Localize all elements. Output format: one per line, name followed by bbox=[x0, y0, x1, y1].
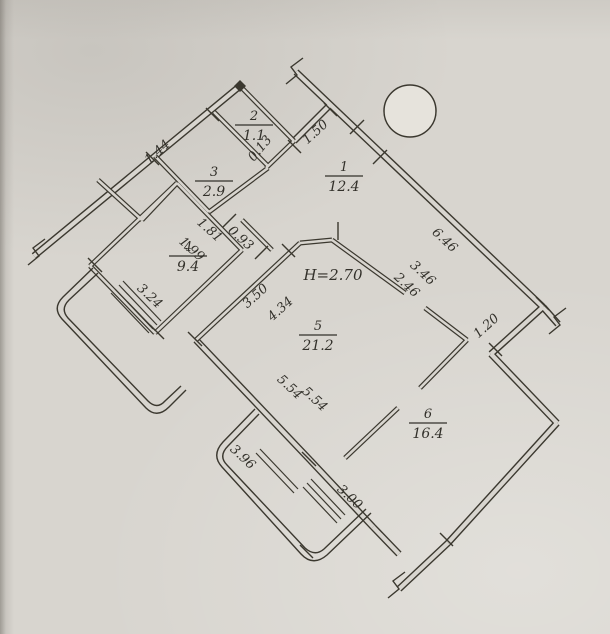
wall-line bbox=[260, 449, 298, 489]
room-number: 1 bbox=[340, 160, 348, 175]
wall-line bbox=[373, 527, 399, 554]
dimension-label-1.20: 1.20 bbox=[471, 311, 503, 342]
scanned-floor-plan-page: 1.440.131.501.811.990.936.463.462.461.20… bbox=[0, 0, 610, 634]
room-area: 9.4 bbox=[177, 259, 199, 275]
room-label-3: 32.9 bbox=[195, 165, 233, 200]
wall-line bbox=[448, 423, 557, 543]
floor-plan-canvas: 1.440.131.501.811.990.936.463.462.461.20… bbox=[0, 0, 610, 634]
wall-line bbox=[256, 453, 294, 493]
column-circle bbox=[384, 85, 436, 137]
room-label-1: 112.4 bbox=[325, 160, 363, 195]
dimension-label-5.54: 5.54 bbox=[299, 384, 330, 415]
dimension-label-3.96: 3.96 bbox=[227, 442, 258, 473]
dimension-label-3.24: 3.24 bbox=[134, 281, 165, 312]
wall-line bbox=[345, 408, 398, 458]
wall-line bbox=[425, 308, 467, 340]
wall-line bbox=[255, 246, 268, 259]
dimension-label-6.46: 6.46 bbox=[429, 225, 460, 256]
dimension-label-1.50: 1.50 bbox=[300, 117, 332, 148]
dimension-label-3.50: 3.50 bbox=[240, 281, 272, 312]
room-number: 6 bbox=[424, 407, 432, 422]
room-area: 16.4 bbox=[412, 426, 443, 442]
dimension-label-1.81: 1.81 bbox=[194, 215, 226, 246]
ceiling-height-note: Н=2.70 bbox=[302, 266, 363, 284]
wall-line bbox=[196, 243, 300, 340]
room-area: 2.9 bbox=[202, 184, 225, 200]
room-label-6: 616.4 bbox=[409, 407, 447, 442]
wall-line bbox=[303, 487, 337, 523]
dimension-label-4.34: 4.34 bbox=[264, 294, 296, 325]
dimension-label-5.54: 5.54 bbox=[274, 372, 305, 403]
wall-line bbox=[155, 156, 209, 212]
labels-group: 1.440.131.501.811.990.936.463.462.461.20… bbox=[134, 109, 503, 513]
wall-line bbox=[399, 543, 448, 589]
wall-line bbox=[57, 268, 186, 413]
room-number: 3 bbox=[210, 165, 218, 180]
wall-line bbox=[491, 354, 557, 423]
room-number: 2 bbox=[249, 109, 258, 124]
balconies-group bbox=[57, 268, 371, 561]
room-area: 1.1 bbox=[243, 128, 265, 144]
room-label-5: 521.2 bbox=[299, 319, 337, 354]
room-number: 5 bbox=[314, 319, 322, 334]
room-area: 21.2 bbox=[301, 338, 333, 354]
wall-line bbox=[491, 307, 543, 354]
room-area: 12.4 bbox=[328, 179, 359, 195]
wall-line bbox=[420, 340, 467, 388]
room-number: 4 bbox=[183, 240, 192, 255]
